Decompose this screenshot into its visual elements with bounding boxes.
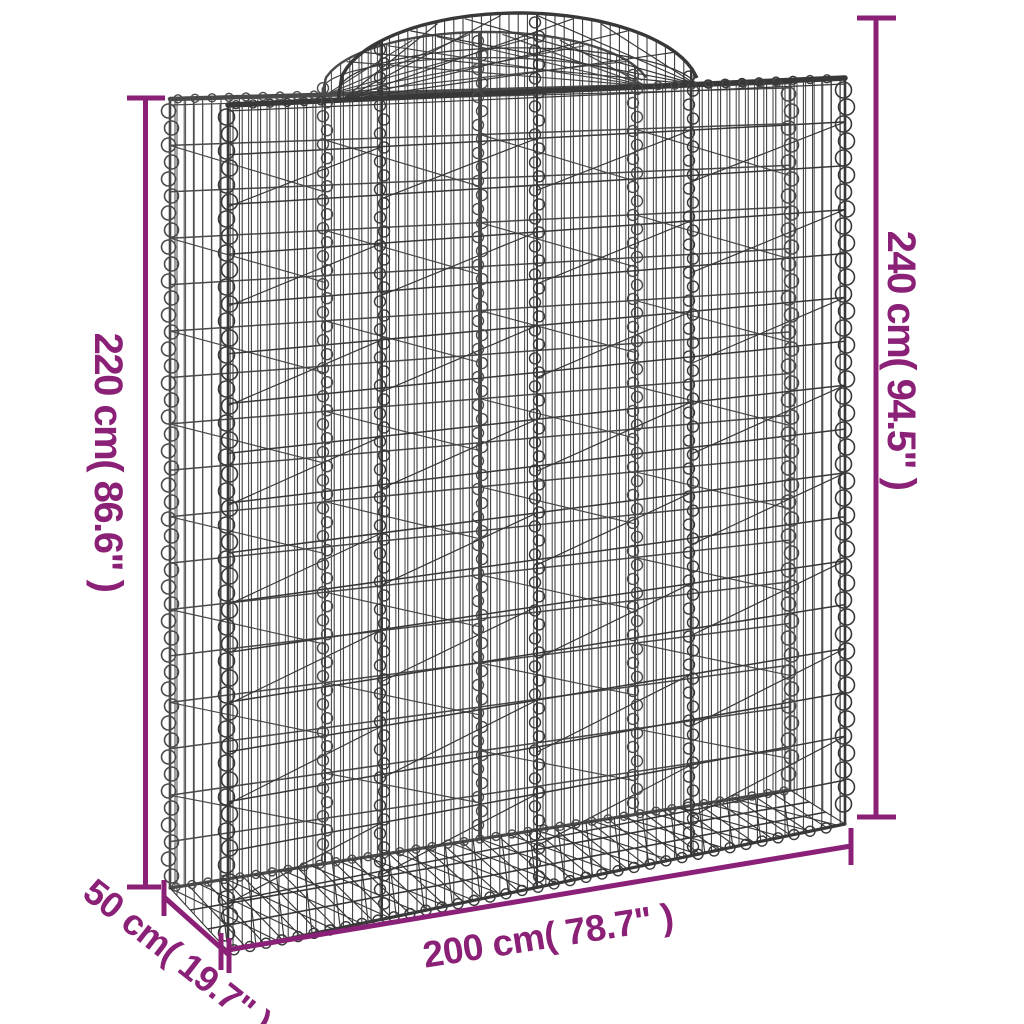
height-right-label: 240 cm( 94.5" ) [879, 231, 923, 490]
height-left-label: 220 cm( 86.6" ) [86, 333, 130, 592]
product-dimension-diagram: 220 cm( 86.6" ) 240 cm( 94.5" ) 200 cm( … [0, 0, 1024, 1024]
gabion-basket-wireframe [162, 13, 855, 955]
width-bottom-label: 200 cm( 78.7" ) [420, 896, 676, 976]
diagram-canvas: 220 cm( 86.6" ) 240 cm( 94.5" ) 200 cm( … [0, 0, 1024, 1024]
